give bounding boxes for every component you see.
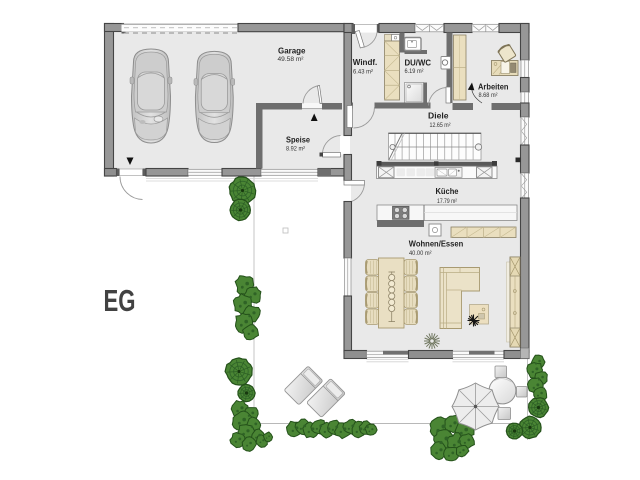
- svg-text:Garage: Garage: [278, 46, 306, 56]
- svg-text:EG: EG: [104, 284, 136, 318]
- svg-text:Küche: Küche: [436, 186, 459, 196]
- svg-text:8.92 m²: 8.92 m²: [286, 146, 306, 153]
- svg-text:49.58 m²: 49.58 m²: [278, 56, 305, 63]
- svg-text:6.19 m²: 6.19 m²: [405, 68, 425, 75]
- svg-text:6.43 m²: 6.43 m²: [353, 68, 374, 75]
- svg-text:Speise: Speise: [286, 135, 310, 145]
- svg-text:40.00 m²: 40.00 m²: [409, 250, 432, 257]
- svg-text:8.68 m²: 8.68 m²: [479, 92, 499, 99]
- svg-text:Diele: Diele: [428, 111, 449, 121]
- svg-text:Wohnen/Essen: Wohnen/Essen: [409, 239, 464, 249]
- svg-text:DU/WC: DU/WC: [405, 58, 432, 68]
- svg-text:Arbeiten: Arbeiten: [478, 82, 509, 92]
- svg-text:17.79 m²: 17.79 m²: [437, 198, 458, 205]
- svg-text:12.65 m²: 12.65 m²: [430, 122, 452, 129]
- svg-text:Windf.: Windf.: [353, 57, 378, 67]
